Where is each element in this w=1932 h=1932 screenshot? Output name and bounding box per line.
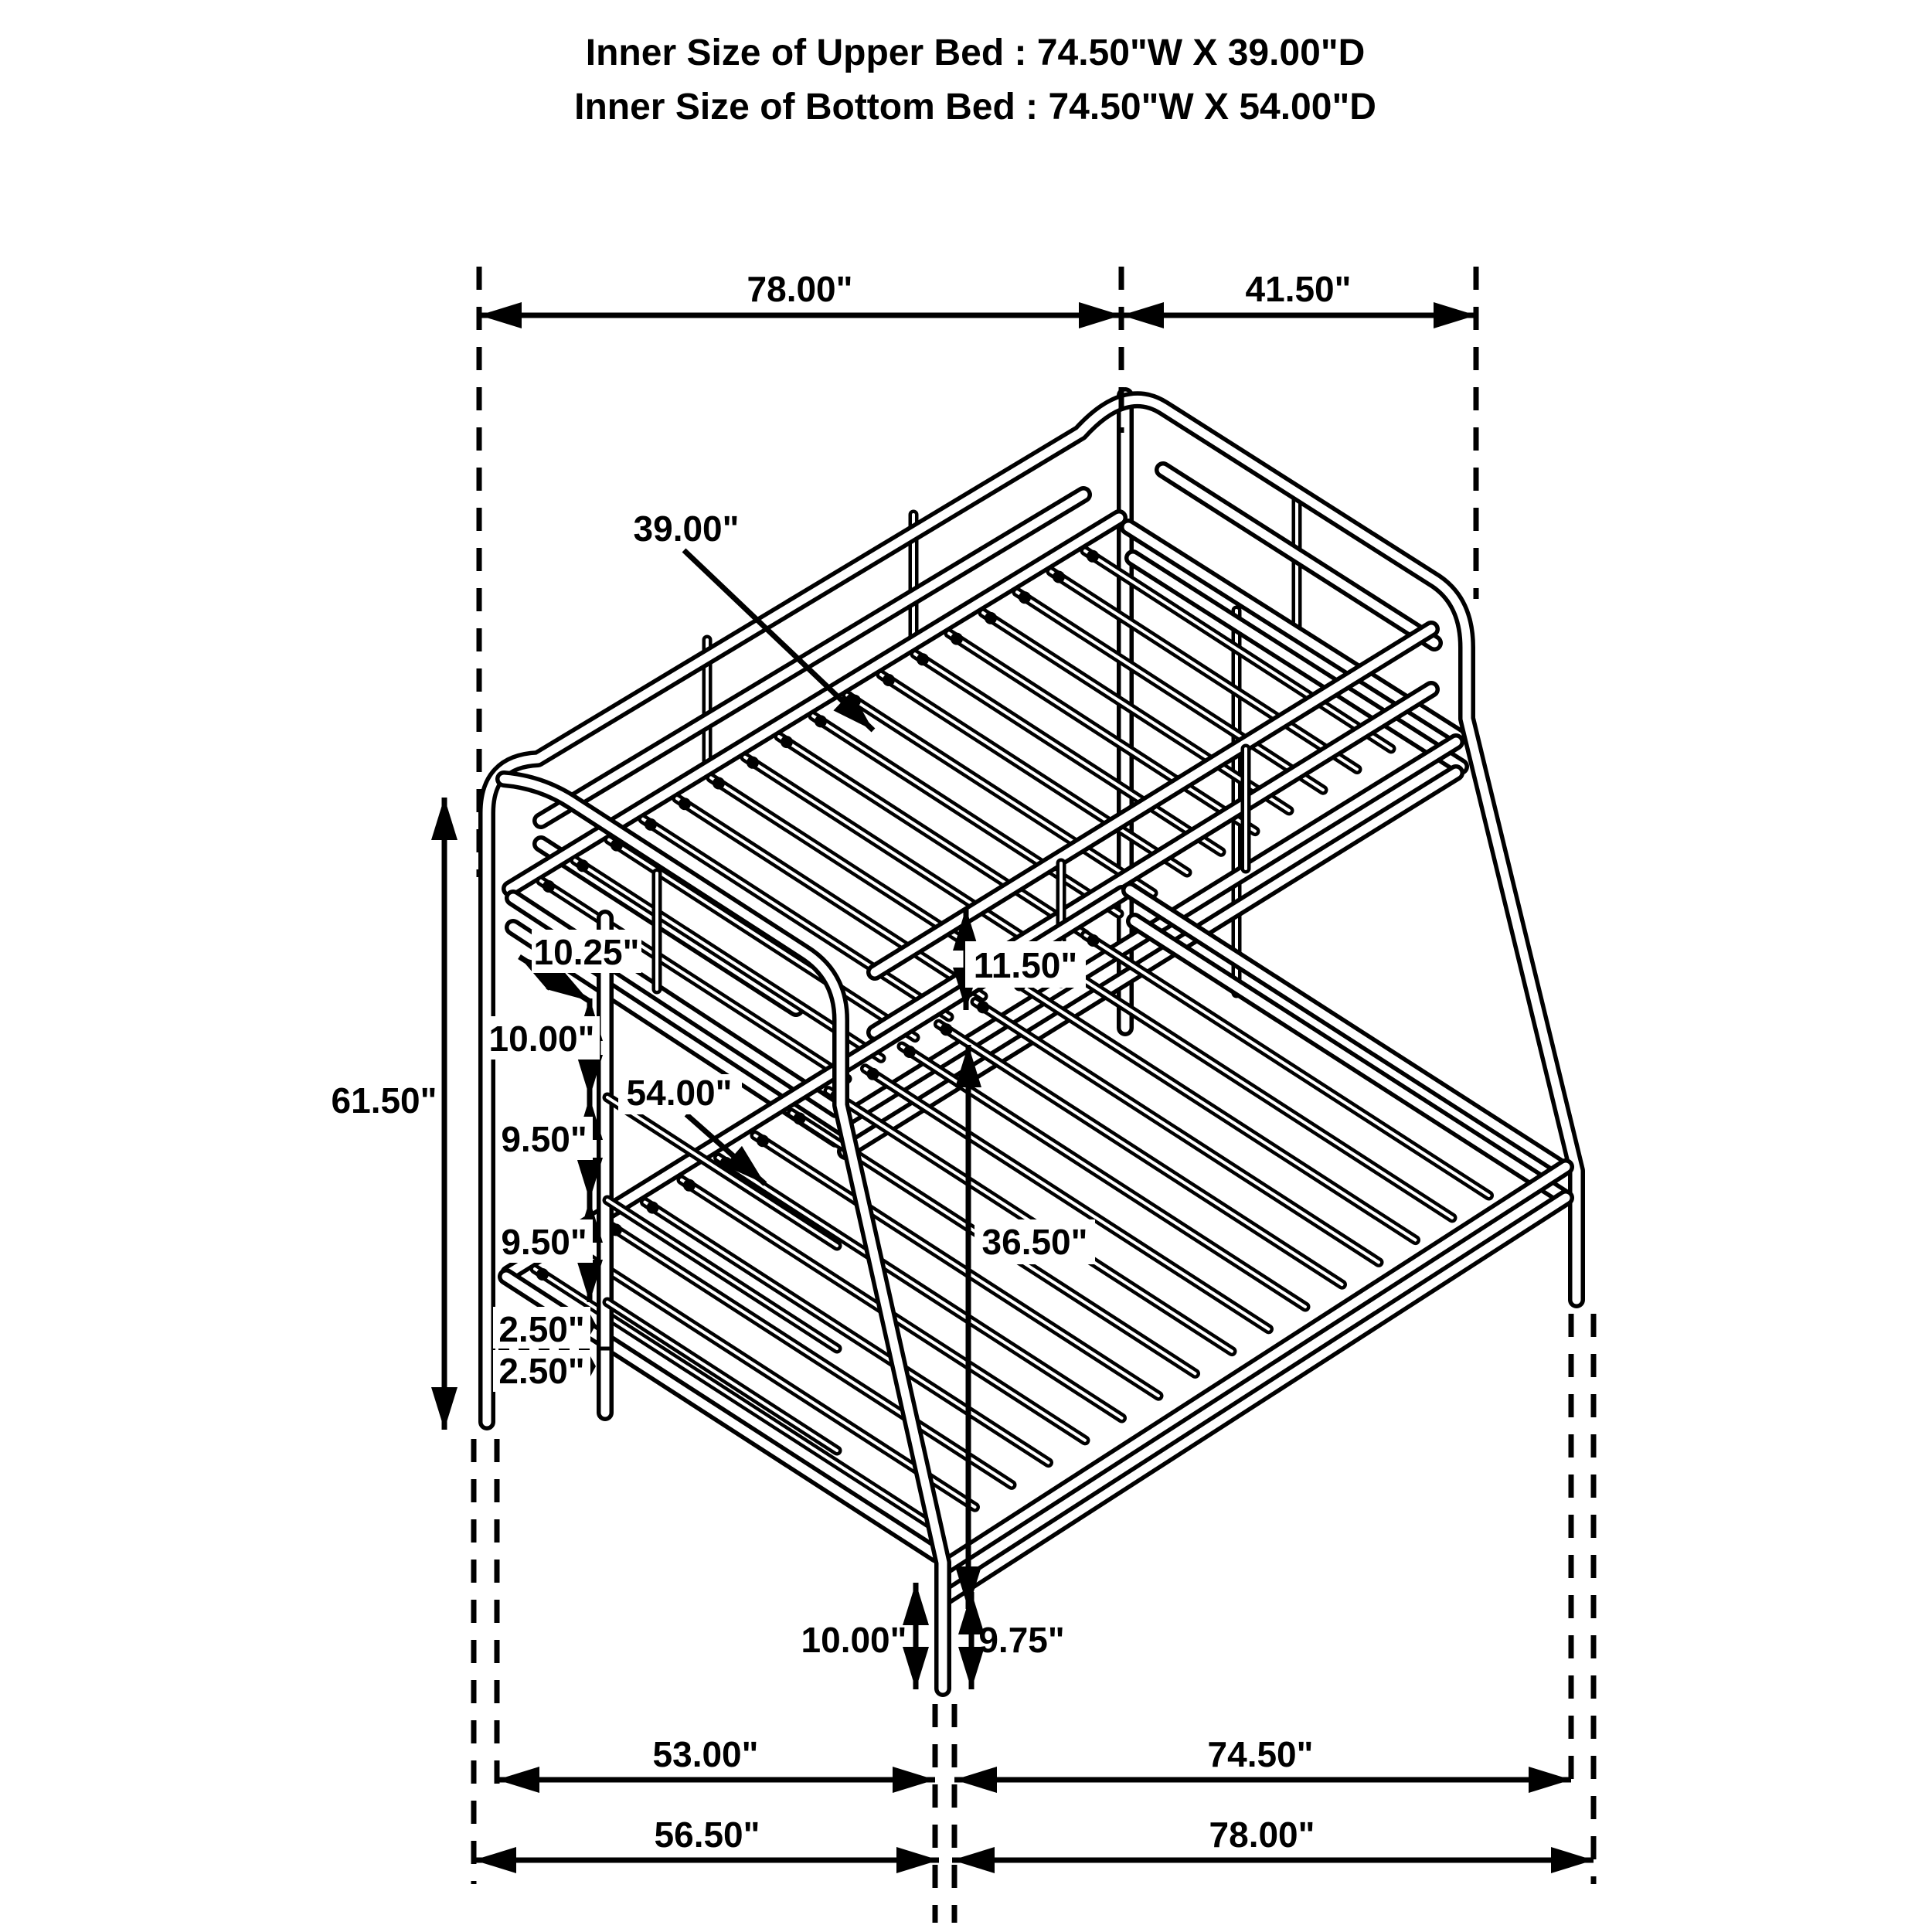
dim-floor-depth-span: 53.00" — [653, 1734, 759, 1774]
diagram-page: Inner Size of Upper Bed : 74.50"W X 39.0… — [0, 0, 1932, 1932]
dim-upper-bed-depth: 39.00" — [634, 509, 740, 549]
title-line-1: Inner Size of Upper Bed : 74.50"W X 39.0… — [586, 32, 1365, 73]
dim-floor-length-overall: 78.00" — [1209, 1815, 1315, 1855]
dim-ladder-gap-2: 9.50" — [501, 1119, 587, 1159]
dim-guard-rail-height: 11.50" — [974, 945, 1077, 985]
dim-ladder-gap-4: 2.50" — [498, 1309, 584, 1349]
dim-overall-height: 61.50" — [332, 1080, 437, 1121]
dim-ladder-gap-3: 9.50" — [501, 1222, 587, 1262]
dim-ladder-gap-1: 10.00" — [489, 1019, 595, 1059]
bunk-bed-isometric-diagram: Inner Size of Upper Bed : 74.50"W X 39.0… — [0, 0, 1932, 1932]
dim-floor-depth-overall: 56.50" — [655, 1815, 760, 1855]
dim-ladder-gap-5: 2.50" — [498, 1351, 584, 1391]
dim-front-leg-height: 10.00" — [801, 1620, 907, 1660]
title-line-2: Inner Size of Bottom Bed : 74.50"W X 54.… — [574, 87, 1376, 128]
dim-top-depth: 41.50" — [1246, 269, 1352, 309]
dim-under-bunk-clearance: 36.50" — [982, 1222, 1088, 1262]
dim-lower-bed-depth: 54.00" — [627, 1073, 733, 1113]
bed-line-art — [487, 396, 1577, 1689]
dim-floor-length-span: 74.50" — [1208, 1734, 1314, 1774]
dim-top-length: 78.00" — [747, 269, 853, 309]
dim-front-leg-height-rear: 9.75" — [978, 1620, 1064, 1660]
dim-ladder-top-offset: 10.25" — [534, 932, 640, 972]
